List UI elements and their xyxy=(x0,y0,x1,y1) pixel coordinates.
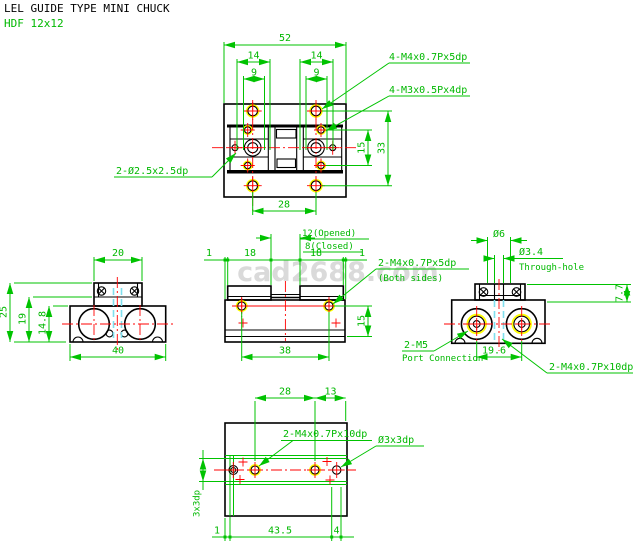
cad-drawing-page: LEL GUIDE TYPE MINI CHUCK HDF 12x12 cad2… xyxy=(0,0,634,545)
dim-15-front: 15 xyxy=(357,315,368,327)
label-pin-hole: 2-Ø2.5x2.5dp xyxy=(116,165,188,177)
dim-d34: Ø3.4 xyxy=(519,246,543,258)
top-view-m4-holes xyxy=(244,102,325,195)
bottom-view-dimensions: 28 13 3x3dp 1 43.5 4 xyxy=(193,387,355,542)
dim-19-6: 19.6 xyxy=(482,346,506,357)
view-front: 1 18 18 1 12(Opened) 8(Closed) 15 38 2-M… xyxy=(204,229,469,361)
dim-14-right: 14 xyxy=(310,51,322,62)
label-m4-tap: 4-M4x0.7Px5dp xyxy=(389,52,467,63)
dim-28: 28 xyxy=(278,200,290,211)
dim-40: 40 xyxy=(112,346,124,357)
label-through-hole: Through-hole xyxy=(519,263,584,273)
dim-20: 20 xyxy=(112,248,124,259)
dim-4: 4 xyxy=(333,526,339,537)
dim-15: 15 xyxy=(357,142,368,154)
dim-43-5: 43.5 xyxy=(268,526,292,537)
view-top: 52 14 14 9 9 28 15 33 4-M4x0.7Px5dp xyxy=(114,33,470,215)
label-m4-note: (Both sides) xyxy=(378,274,443,284)
label-m4x10-right: 2-M4x0.7Px10dp xyxy=(549,362,633,373)
dim-9-right: 9 xyxy=(313,68,319,79)
bottom-view-labels: 2-M4x0.7Px10dp Ø3x3dp xyxy=(259,429,424,467)
label-m4-both-sides: 2-M4x0.7Px5dp xyxy=(378,258,456,269)
view-right: Ø6 Ø3.4 Through-hole 7.7 19.6 2-M5 Port … xyxy=(402,228,633,373)
right-view-centerlines xyxy=(444,279,553,351)
dim-opened: 12(Opened) xyxy=(302,229,356,239)
dim-13: 13 xyxy=(324,387,336,398)
label-m4x10-bottom: 2-M4x0.7Px10dp xyxy=(283,429,367,440)
top-view-labels: 4-M4x0.7Px5dp 4-M3x0.5Px4dp 2-Ø2.5x2.5dp xyxy=(114,52,470,177)
left-view-dimensions: 20 25 19 14.8 40 xyxy=(0,248,166,361)
drawing-canvas: LEL GUIDE TYPE MINI CHUCK HDF 12x12 cad2… xyxy=(0,0,634,545)
dim-18-left: 18 xyxy=(244,248,256,259)
dim-19: 19 xyxy=(18,313,29,325)
dim-14-8: 14.8 xyxy=(38,311,49,335)
dim-d6: Ø6 xyxy=(493,228,505,240)
dim-1-left: 1 xyxy=(206,248,212,259)
dim-9-left: 9 xyxy=(251,68,257,79)
dim-closed: 8(Closed) xyxy=(305,242,354,252)
view-left: 20 25 19 14.8 40 xyxy=(0,248,174,361)
dim-33: 33 xyxy=(377,142,388,154)
label-port-note: Port Connection xyxy=(402,354,483,364)
left-view-centerlines xyxy=(62,277,174,352)
dim-52: 52 xyxy=(279,33,291,44)
dim-7-7: 7.7 xyxy=(615,284,626,302)
dim-38: 38 xyxy=(279,346,291,357)
label-pin-side: 3x3dp xyxy=(193,490,203,517)
dim-28-bottom: 28 xyxy=(279,387,291,398)
right-view-labels: 2-M5 Port Connection 2-M4x0.7Px10dp xyxy=(402,331,633,373)
page-title: LEL GUIDE TYPE MINI CHUCK xyxy=(4,2,170,15)
label-port: 2-M5 xyxy=(404,340,428,351)
top-view-body xyxy=(224,104,346,197)
dim-14-left: 14 xyxy=(247,51,259,62)
model-number: HDF 12x12 xyxy=(4,17,64,30)
front-view-m4-holes xyxy=(234,298,341,328)
label-pin-d3: Ø3x3dp xyxy=(378,434,414,446)
view-bottom: 28 13 3x3dp 1 43.5 4 2-M4x0.7Px10dp Ø3x3… xyxy=(193,387,425,542)
left-view-body xyxy=(70,283,166,342)
label-m3-tap: 4-M3x0.5Px4dp xyxy=(389,85,467,96)
top-view-dimensions: 52 14 14 9 9 28 15 33 xyxy=(224,33,392,215)
dim-25: 25 xyxy=(0,306,10,318)
front-view-centerlines xyxy=(232,281,338,341)
dim-1-right: 1 xyxy=(359,248,365,259)
dim-1-bottom: 1 xyxy=(214,526,220,537)
